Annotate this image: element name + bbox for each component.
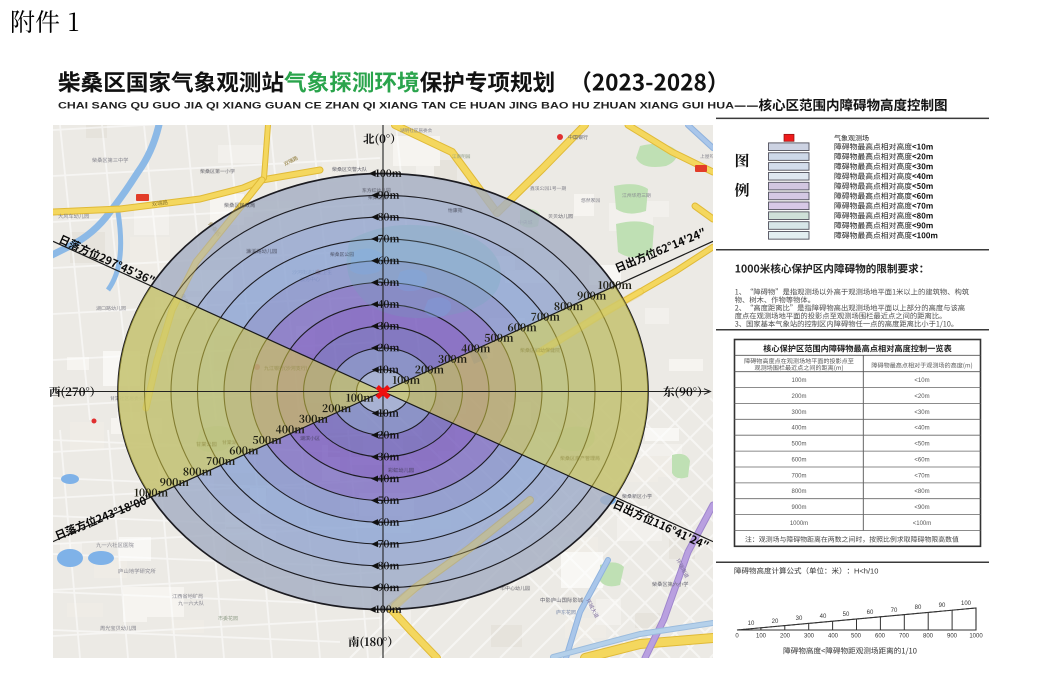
svg-text:10: 10 [748,621,755,627]
svg-text:60: 60 [867,610,874,616]
svg-text:300: 300 [804,634,815,640]
svg-text:0: 0 [735,634,739,640]
svg-text:900m: 900m [791,505,806,511]
svg-text:700: 700 [899,634,910,640]
svg-text:1000m: 1000m [790,521,808,527]
svg-text:H<h/10: H<h/10 [854,567,878,576]
svg-text:400: 400 [828,634,839,640]
svg-text:500: 500 [851,634,862,640]
svg-text:<60m: <60m [914,457,929,463]
svg-text:70: 70 [891,608,898,614]
svg-text:<50m: <50m [914,442,929,448]
svg-text:40: 40 [820,614,827,620]
svg-text:500m: 500m [791,442,806,448]
svg-text:600m: 600m [791,457,806,463]
svg-text:100: 100 [961,601,972,607]
svg-text:80: 80 [915,605,922,611]
svg-text:<10m: <10m [914,378,929,384]
svg-text:200m: 200m [791,394,806,400]
svg-text:900: 900 [947,634,958,640]
svg-text:30: 30 [796,616,803,622]
svg-text:<40m: <40m [914,426,929,432]
svg-text:<30m: <30m [914,410,929,416]
svg-text:<90m: <90m [914,505,929,511]
svg-text:<70m: <70m [914,473,929,479]
svg-text:1000: 1000 [969,634,983,640]
svg-text:<100m: <100m [913,521,932,527]
svg-text:20: 20 [772,619,779,625]
svg-text:<80m: <80m [914,489,929,495]
svg-text:800: 800 [923,634,934,640]
svg-text:90: 90 [939,603,946,609]
svg-text:100m: 100m [791,378,806,384]
svg-text:50: 50 [843,612,850,618]
svg-text:700m: 700m [791,473,806,479]
svg-text:600: 600 [875,634,886,640]
svg-text:CHAI SANG QU GUO JIA QI XIANG: CHAI SANG QU GUO JIA QI XIANG GUAN CE ZH… [58,101,734,111]
svg-text:<20m: <20m [914,394,929,400]
svg-text:800m: 800m [791,489,806,495]
svg-text:200: 200 [780,634,791,640]
svg-text:400m: 400m [791,426,806,432]
svg-text:300m: 300m [791,410,806,416]
svg-text:100: 100 [756,634,767,640]
